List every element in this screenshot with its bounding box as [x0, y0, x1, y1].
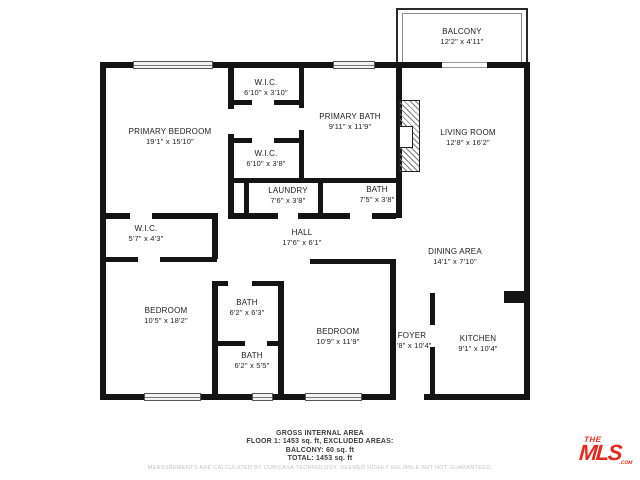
room-label-kitchen: KITCHEN 9'1" x 10'4": [458, 333, 497, 355]
floor-plan-canvas: BALCONY 12'2" x 4'11" W.I.C. 6'10" x 3'1…: [0, 0, 640, 480]
room-dims: 7'6" x 3'8": [268, 196, 308, 207]
room-name: FOYER: [392, 330, 431, 341]
wall-bedroom-center-top: [310, 259, 390, 264]
wall-hall-top-b: [298, 213, 350, 219]
mls-logo: THE MLS .COM: [578, 436, 639, 472]
disclaimer-text: MEASUREMENTS ARE CALCULATED BY CUBICASA …: [0, 465, 640, 471]
wall-bath-divider-b: [267, 341, 283, 346]
wall-bath-mid-top-b: [252, 281, 278, 286]
room-label-bath-upper: BATH 7'5" x 3'8": [360, 184, 395, 206]
wall-laundry-left: [244, 183, 249, 215]
room-name: BEDROOM: [144, 305, 188, 316]
room-name: BATH: [235, 350, 270, 361]
room-name: BALCONY: [440, 26, 483, 37]
wall-wic-left-bottom-a: [105, 257, 138, 262]
room-label-balcony: BALCONY 12'2" x 4'11": [440, 26, 483, 48]
room-label-bedroom-left: BEDROOM 10'5" x 18'2": [144, 305, 188, 327]
room-name: W.I.C.: [246, 148, 285, 159]
room-dims: 4'8" x 10'4": [392, 341, 431, 352]
wall-bath-mid-top-a: [218, 281, 228, 286]
room-dims: 12'2" x 4'11": [440, 37, 483, 48]
room-dims: 10'9" x 11'9": [316, 337, 359, 348]
room-label-primary-bath: PRIMARY BATH 9'11" x 11'9": [319, 111, 381, 133]
room-name: LIVING ROOM: [440, 127, 496, 138]
window-bath: [252, 393, 273, 401]
wall-foyer-kitchen-divider-lower: [430, 347, 435, 395]
wall-bedroom-left-right: [212, 281, 218, 395]
wall-bath-divider-a: [218, 341, 245, 346]
room-dims: 6'2" x 6'3": [230, 308, 265, 319]
fireplace-opening: [399, 126, 413, 148]
room-label-wic-top: W.I.C. 6'10" x 3'10": [244, 77, 288, 99]
mls-logo-mls: MLS: [578, 444, 637, 461]
room-dims: 9'1" x 10'4": [458, 344, 497, 355]
wall-primary-bedroom-bottom-a: [100, 213, 130, 219]
wall-primary-bedroom-bottom-b: [152, 213, 218, 219]
room-dims: 6'10" x 3'10": [244, 88, 288, 99]
wall-foyer-kitchen-divider-upper: [430, 293, 435, 325]
wall-exterior-bottom-right: [424, 394, 530, 400]
room-dims: 14'1" x 7'10": [428, 257, 482, 268]
window-bedroom-left: [144, 393, 201, 401]
area-summary-balcony: BALCONY: 60 sq. ft: [0, 447, 640, 455]
area-summary: GROSS INTERNAL AREA FLOOR 1: 1453 sq. ft…: [0, 430, 640, 471]
wall-wic-bath-divider-lower: [299, 130, 304, 183]
wall-kitchen-notch: [504, 291, 526, 303]
room-label-bath-middle: BATH 6'2" x 6'3": [230, 297, 265, 319]
room-label-wic-left: W.I.C. 5'7" x 4'3": [129, 223, 164, 245]
room-dims: 12'8" x 16'2": [440, 138, 496, 149]
balcony-sliding-door: [442, 62, 487, 68]
room-dims: 5'7" x 4'3": [129, 234, 164, 245]
room-name: PRIMARY BATH: [319, 111, 381, 122]
area-summary-floor1: FLOOR 1: 1453 sq. ft, EXCLUDED AREAS:: [0, 438, 640, 446]
wall-hall-top-c: [372, 213, 396, 219]
wall-exterior-left: [100, 62, 106, 400]
wall-wic1-bottom-a: [234, 100, 252, 105]
room-name: W.I.C.: [129, 223, 164, 234]
room-dims: 6'2" x 5'5": [235, 361, 270, 372]
room-name: W.I.C.: [244, 77, 288, 88]
wall-primary-bedroom-right-lower: [228, 134, 234, 219]
room-name: BATH: [230, 297, 265, 308]
room-dims: 10'5" x 18'2": [144, 316, 188, 327]
room-label-foyer: FOYER 4'8" x 10'4": [392, 330, 431, 352]
wall-exterior-right: [524, 62, 530, 400]
room-name: DINING AREA: [428, 246, 482, 257]
wall-laundry-row-top: [228, 178, 396, 183]
room-dims: 19'1" x 15'10": [129, 137, 212, 148]
room-dims: 17'6" x 6'1": [282, 238, 321, 249]
room-label-laundry: LAUNDRY 7'6" x 3'8": [268, 185, 308, 207]
room-label-bath-lower: BATH 6'2" x 5'5": [235, 350, 270, 372]
window-bedroom-center: [305, 393, 362, 401]
wall-bath-bedroom-divider: [278, 281, 284, 395]
room-name: PRIMARY BEDROOM: [129, 126, 212, 137]
room-label-living-room: LIVING ROOM 12'8" x 16'2": [440, 127, 496, 149]
wall-wic-bath-divider-upper: [299, 62, 304, 108]
room-name: LAUNDRY: [268, 185, 308, 196]
window-primary-bedroom: [133, 61, 213, 69]
wall-wic-left-bottom-b: [160, 257, 217, 262]
room-label-hall: HALL 17'6" x 6'1": [282, 227, 321, 249]
room-dims: 6'10" x 3'8": [246, 159, 285, 170]
room-label-primary-bedroom: PRIMARY BEDROOM 19'1" x 15'10": [129, 126, 212, 148]
area-summary-total: TOTAL: 1453 sq. ft: [0, 455, 640, 463]
wall-bedroom-center-right: [390, 259, 396, 394]
room-label-wic-mid: W.I.C. 6'10" x 3'8": [246, 148, 285, 170]
area-summary-title: GROSS INTERNAL AREA: [0, 430, 640, 438]
room-name: HALL: [282, 227, 321, 238]
room-label-bedroom-center: BEDROOM 10'9" x 11'9": [316, 326, 359, 348]
room-label-dining-area: DINING AREA 14'1" x 7'10": [428, 246, 482, 268]
window-primary-bath: [333, 61, 375, 69]
room-name: BATH: [360, 184, 395, 195]
wall-wic2-top-a: [234, 138, 252, 143]
wall-laundry-bath-divider: [318, 183, 323, 215]
room-dims: 7'5" x 3'8": [360, 195, 395, 206]
room-name: BEDROOM: [316, 326, 359, 337]
wall-wic-left-right: [212, 219, 218, 259]
wall-hall-top-a: [228, 213, 278, 219]
room-name: KITCHEN: [458, 333, 497, 344]
room-dims: 9'11" x 11'9": [319, 122, 381, 133]
